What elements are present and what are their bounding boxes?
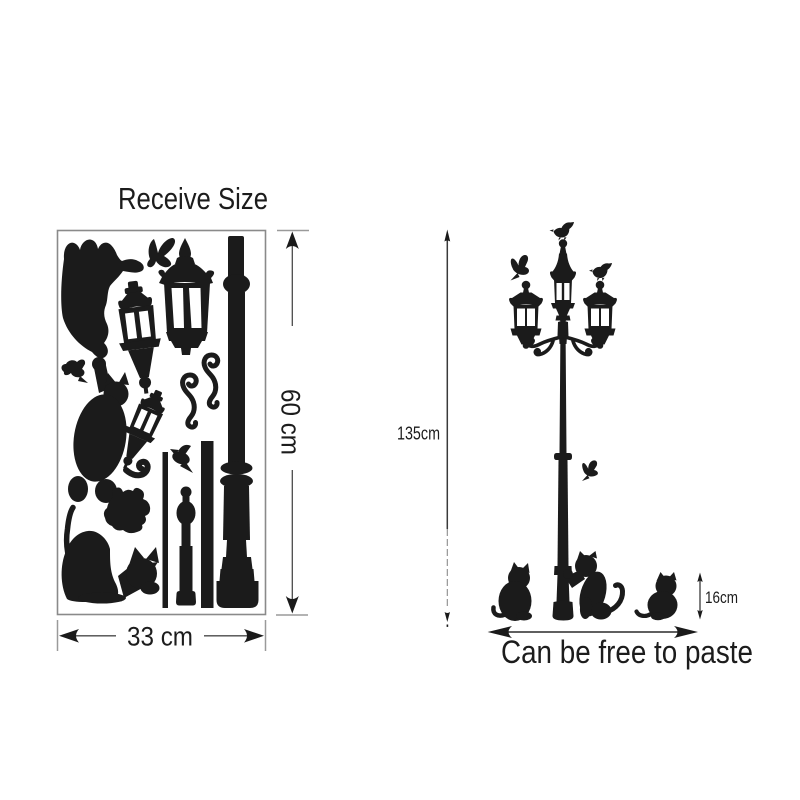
svg-text:60 cm: 60 cm [276, 389, 306, 455]
svg-text:135cm: 135cm [397, 424, 440, 444]
svg-text:Can be free to paste: Can be free to paste [501, 634, 753, 670]
svg-text:Receive Size: Receive Size [118, 181, 268, 216]
svg-text:16cm: 16cm [705, 588, 738, 607]
svg-text:33 cm: 33 cm [127, 622, 193, 652]
